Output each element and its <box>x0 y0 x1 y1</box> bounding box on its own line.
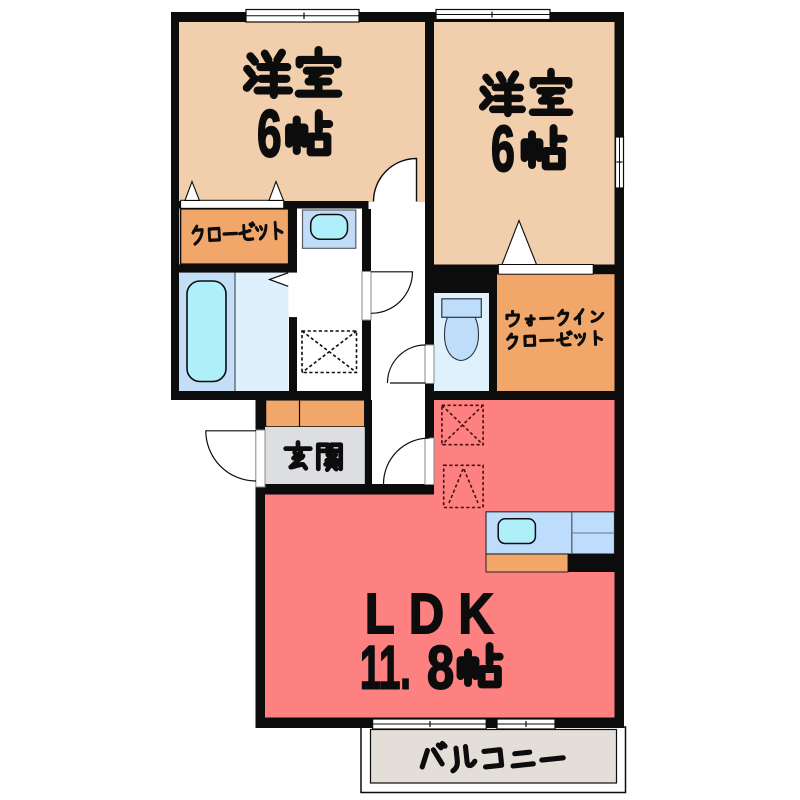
svg-text:11.: 11. <box>360 633 411 701</box>
svg-text:8: 8 <box>427 633 454 701</box>
svg-text:6: 6 <box>257 97 282 171</box>
svg-text:6: 6 <box>491 112 515 185</box>
